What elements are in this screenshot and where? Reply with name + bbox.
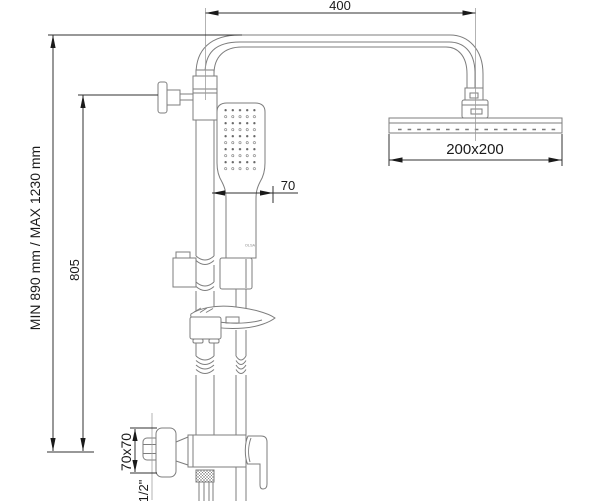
hand-shower: OLSA — [217, 103, 265, 258]
slider-bracket — [173, 252, 196, 287]
mixer-body — [188, 435, 246, 467]
dim-200x200-label: 200x200 — [446, 141, 504, 158]
overhead-shower-connector — [462, 88, 488, 118]
hand-shower-holder — [220, 258, 252, 289]
dim-min-max-label: MIN 890 mm / MAX 1230 mm — [27, 146, 43, 330]
dim-805: 805 — [67, 95, 158, 451]
thread-size-label: 1/2" — [136, 479, 151, 501]
riser-tee — [193, 70, 217, 120]
mixer-lever — [245, 436, 267, 489]
riser-pipe — [196, 120, 214, 435]
diverter-knob — [158, 82, 193, 113]
dim-70-label: 70 — [281, 178, 295, 193]
shower-arm — [196, 35, 483, 88]
hand-shower-brand-label: OLSA — [245, 244, 256, 248]
dim-70x70-label: 70x70 — [118, 433, 134, 471]
flex-hose — [199, 482, 213, 501]
hose-nut — [196, 470, 214, 482]
spray-face-dots — [223, 108, 260, 171]
soap-dish — [190, 306, 275, 343]
pipe-break-symbols-hose — [236, 356, 246, 374]
mixer-cone — [176, 437, 188, 465]
dim-400-label: 400 — [329, 0, 351, 13]
dim-805-label: 805 — [67, 259, 82, 281]
dim-400: 400 — [206, 0, 476, 16]
shower-column-technical-drawing: OLSA — [0, 0, 600, 501]
wall-flange — [156, 428, 176, 477]
drawing-canvas: OLSA — [0, 0, 600, 501]
